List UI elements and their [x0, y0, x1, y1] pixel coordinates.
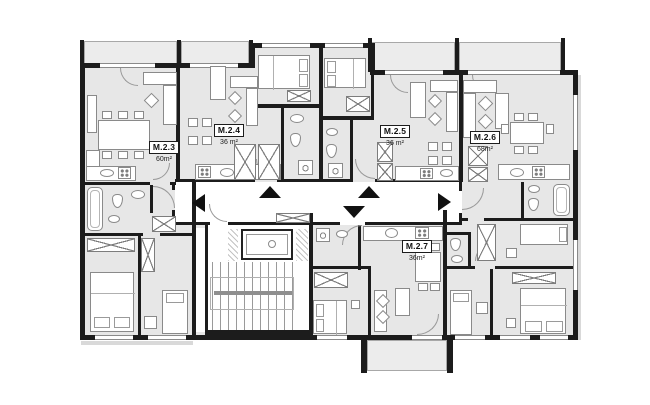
wardrobe-symbol	[468, 167, 488, 182]
wardrobe-symbol	[346, 96, 370, 112]
double-bed-symbol	[520, 288, 566, 334]
bathtub-symbol	[553, 184, 570, 216]
apartment-label-m24[interactable]: M.2.4 36 m²	[196, 120, 262, 147]
chair-symbol	[102, 151, 112, 159]
chair-symbol	[428, 156, 438, 165]
window	[573, 95, 578, 150]
wall	[361, 340, 367, 373]
window	[325, 43, 363, 48]
wardrobe-symbol	[314, 272, 348, 288]
wall	[521, 182, 524, 218]
sofa-symbol	[446, 92, 458, 132]
stove-symbol	[532, 166, 545, 178]
exterior-edge	[81, 341, 193, 345]
sofa-symbol	[163, 85, 177, 125]
stove-symbol	[420, 168, 433, 179]
exterior-edge	[578, 75, 581, 340]
window	[148, 335, 186, 340]
double-bed-symbol	[324, 58, 366, 88]
wall	[462, 218, 468, 221]
sink-symbol	[528, 185, 540, 193]
single-bed-symbol	[520, 224, 568, 245]
wall	[350, 120, 353, 182]
sink-symbol	[451, 255, 463, 263]
window	[412, 335, 442, 340]
wall	[371, 75, 374, 120]
wall	[205, 225, 208, 335]
entrance-arrow-m24	[259, 186, 281, 198]
wall	[468, 232, 471, 268]
wall	[83, 182, 150, 185]
wall	[177, 40, 181, 65]
entrance-arrow-m27	[343, 206, 365, 218]
chair-symbol	[102, 111, 112, 119]
window	[317, 335, 347, 340]
window	[500, 335, 530, 340]
apartment-label-m25[interactable]: M.2.5 36 m²	[362, 121, 428, 148]
chair-symbol	[528, 146, 538, 154]
apartment-id: M.2.5	[380, 125, 410, 138]
entrance-arrow-m25	[358, 186, 380, 198]
balcony	[372, 42, 455, 71]
wall	[319, 48, 323, 182]
elevator-car	[246, 234, 288, 255]
sideboard-symbol	[395, 288, 410, 316]
chair-symbol	[418, 283, 428, 291]
washer-symbol	[298, 160, 313, 175]
sink-symbol	[510, 168, 524, 177]
double-bed-symbol	[258, 55, 310, 89]
apartment-id: M.2.6	[470, 131, 500, 144]
wall	[80, 63, 85, 340]
apartment-id: M.2.7	[402, 240, 432, 253]
washer-symbol	[328, 163, 343, 178]
wall	[80, 40, 84, 65]
wardrobe-symbol	[377, 163, 393, 181]
sink-symbol	[100, 169, 114, 177]
sideboard-symbol	[410, 82, 426, 118]
apartment-area: 36 m²	[196, 138, 262, 147]
chair-symbol	[514, 113, 524, 121]
stove-symbol	[198, 166, 211, 178]
nightstand-symbol	[351, 300, 360, 309]
wardrobe-symbol	[152, 216, 176, 232]
sofa-symbol	[230, 76, 258, 88]
chair-symbol	[528, 113, 538, 121]
apartment-label-m27[interactable]: M.2.7 36m²	[384, 236, 450, 263]
entrance-arrow-m26	[438, 193, 451, 211]
apartment-area: 36 m²	[362, 139, 428, 148]
wardrobe-symbol	[234, 144, 256, 180]
wall	[250, 104, 322, 108]
window	[540, 335, 568, 340]
wall	[490, 269, 493, 335]
wall	[277, 179, 353, 182]
balcony	[84, 41, 177, 64]
wall	[160, 233, 193, 236]
double-bed-symbol	[90, 272, 134, 332]
wardrobe-symbol	[287, 90, 311, 102]
chair-symbol	[134, 111, 144, 119]
chair-symbol	[428, 142, 438, 151]
sink-symbol	[336, 230, 348, 238]
shaft-hatch	[228, 229, 238, 261]
single-bed-symbol	[162, 290, 188, 334]
apartment-id: M.2.3	[149, 141, 179, 154]
wardrobe-symbol	[477, 224, 496, 261]
apartment-area: 36m²	[384, 254, 450, 263]
wall	[368, 38, 372, 72]
elevator-detail	[268, 240, 276, 248]
nightstand-symbol	[506, 318, 516, 328]
wall	[365, 222, 462, 225]
chair-symbol	[546, 124, 554, 134]
balcony	[459, 42, 561, 71]
shaft-gap	[196, 228, 205, 332]
window	[262, 43, 310, 48]
sink-symbol	[290, 114, 304, 123]
wall	[561, 38, 565, 72]
balcony	[367, 340, 447, 371]
wall	[208, 330, 309, 335]
apartment-area: 68m²	[452, 145, 518, 154]
sofa-symbol	[430, 80, 458, 92]
apartment-area: 60m²	[131, 155, 197, 164]
wall	[455, 38, 459, 72]
floor-plan: M.2.3 60m² M.2.4 36 m² M.2.5 36 m² M.2.6…	[0, 0, 650, 405]
bathtub-symbol	[87, 187, 103, 231]
balcony	[181, 41, 249, 64]
single-bed-symbol	[450, 290, 472, 335]
tv-cabinet-symbol	[87, 95, 97, 133]
stair-mid-rail	[214, 291, 292, 295]
wall	[170, 182, 176, 185]
double-bed-symbol	[313, 300, 347, 334]
wall	[313, 266, 371, 269]
sideboard-symbol	[210, 66, 226, 100]
apartment-label-m23[interactable]: M.2.3 60m²	[131, 137, 197, 164]
nightstand-symbol	[506, 248, 517, 258]
apartment-label-m26[interactable]: M.2.6 68m²	[452, 127, 518, 154]
sofa-symbol	[463, 80, 497, 93]
window	[95, 335, 133, 340]
sofa-symbol	[143, 72, 177, 85]
wall	[446, 266, 475, 269]
chair-symbol	[430, 283, 440, 291]
wardrobe-symbol	[141, 238, 155, 272]
wall	[249, 40, 253, 65]
wall	[83, 233, 143, 236]
wardrobe-symbol	[512, 272, 556, 284]
sink-symbol	[326, 128, 338, 136]
chair-symbol	[442, 156, 452, 165]
wall	[495, 266, 573, 269]
sink-symbol	[220, 168, 234, 177]
apartment-id: M.2.4	[214, 124, 244, 137]
washer-symbol	[316, 228, 330, 242]
chair-symbol	[118, 151, 128, 159]
sink-symbol	[440, 169, 453, 177]
wardrobe-symbol	[87, 238, 135, 252]
desk-symbol	[144, 316, 157, 329]
sink-symbol	[131, 190, 145, 199]
window	[455, 335, 485, 340]
entrance-arrow-m23	[192, 194, 205, 212]
wall	[443, 210, 447, 335]
wall	[484, 218, 573, 221]
wall	[319, 116, 374, 120]
wardrobe-symbol	[258, 144, 280, 180]
chair-symbol	[442, 142, 452, 151]
wall	[281, 108, 284, 182]
shaft-hatch	[296, 229, 308, 261]
window	[573, 240, 578, 290]
sink-symbol	[108, 215, 120, 223]
wall	[447, 340, 453, 373]
chair-symbol	[118, 111, 128, 119]
nightstand-symbol	[476, 302, 488, 314]
stove-symbol	[118, 167, 131, 179]
wall	[368, 269, 371, 335]
shaft-opening	[276, 213, 310, 223]
